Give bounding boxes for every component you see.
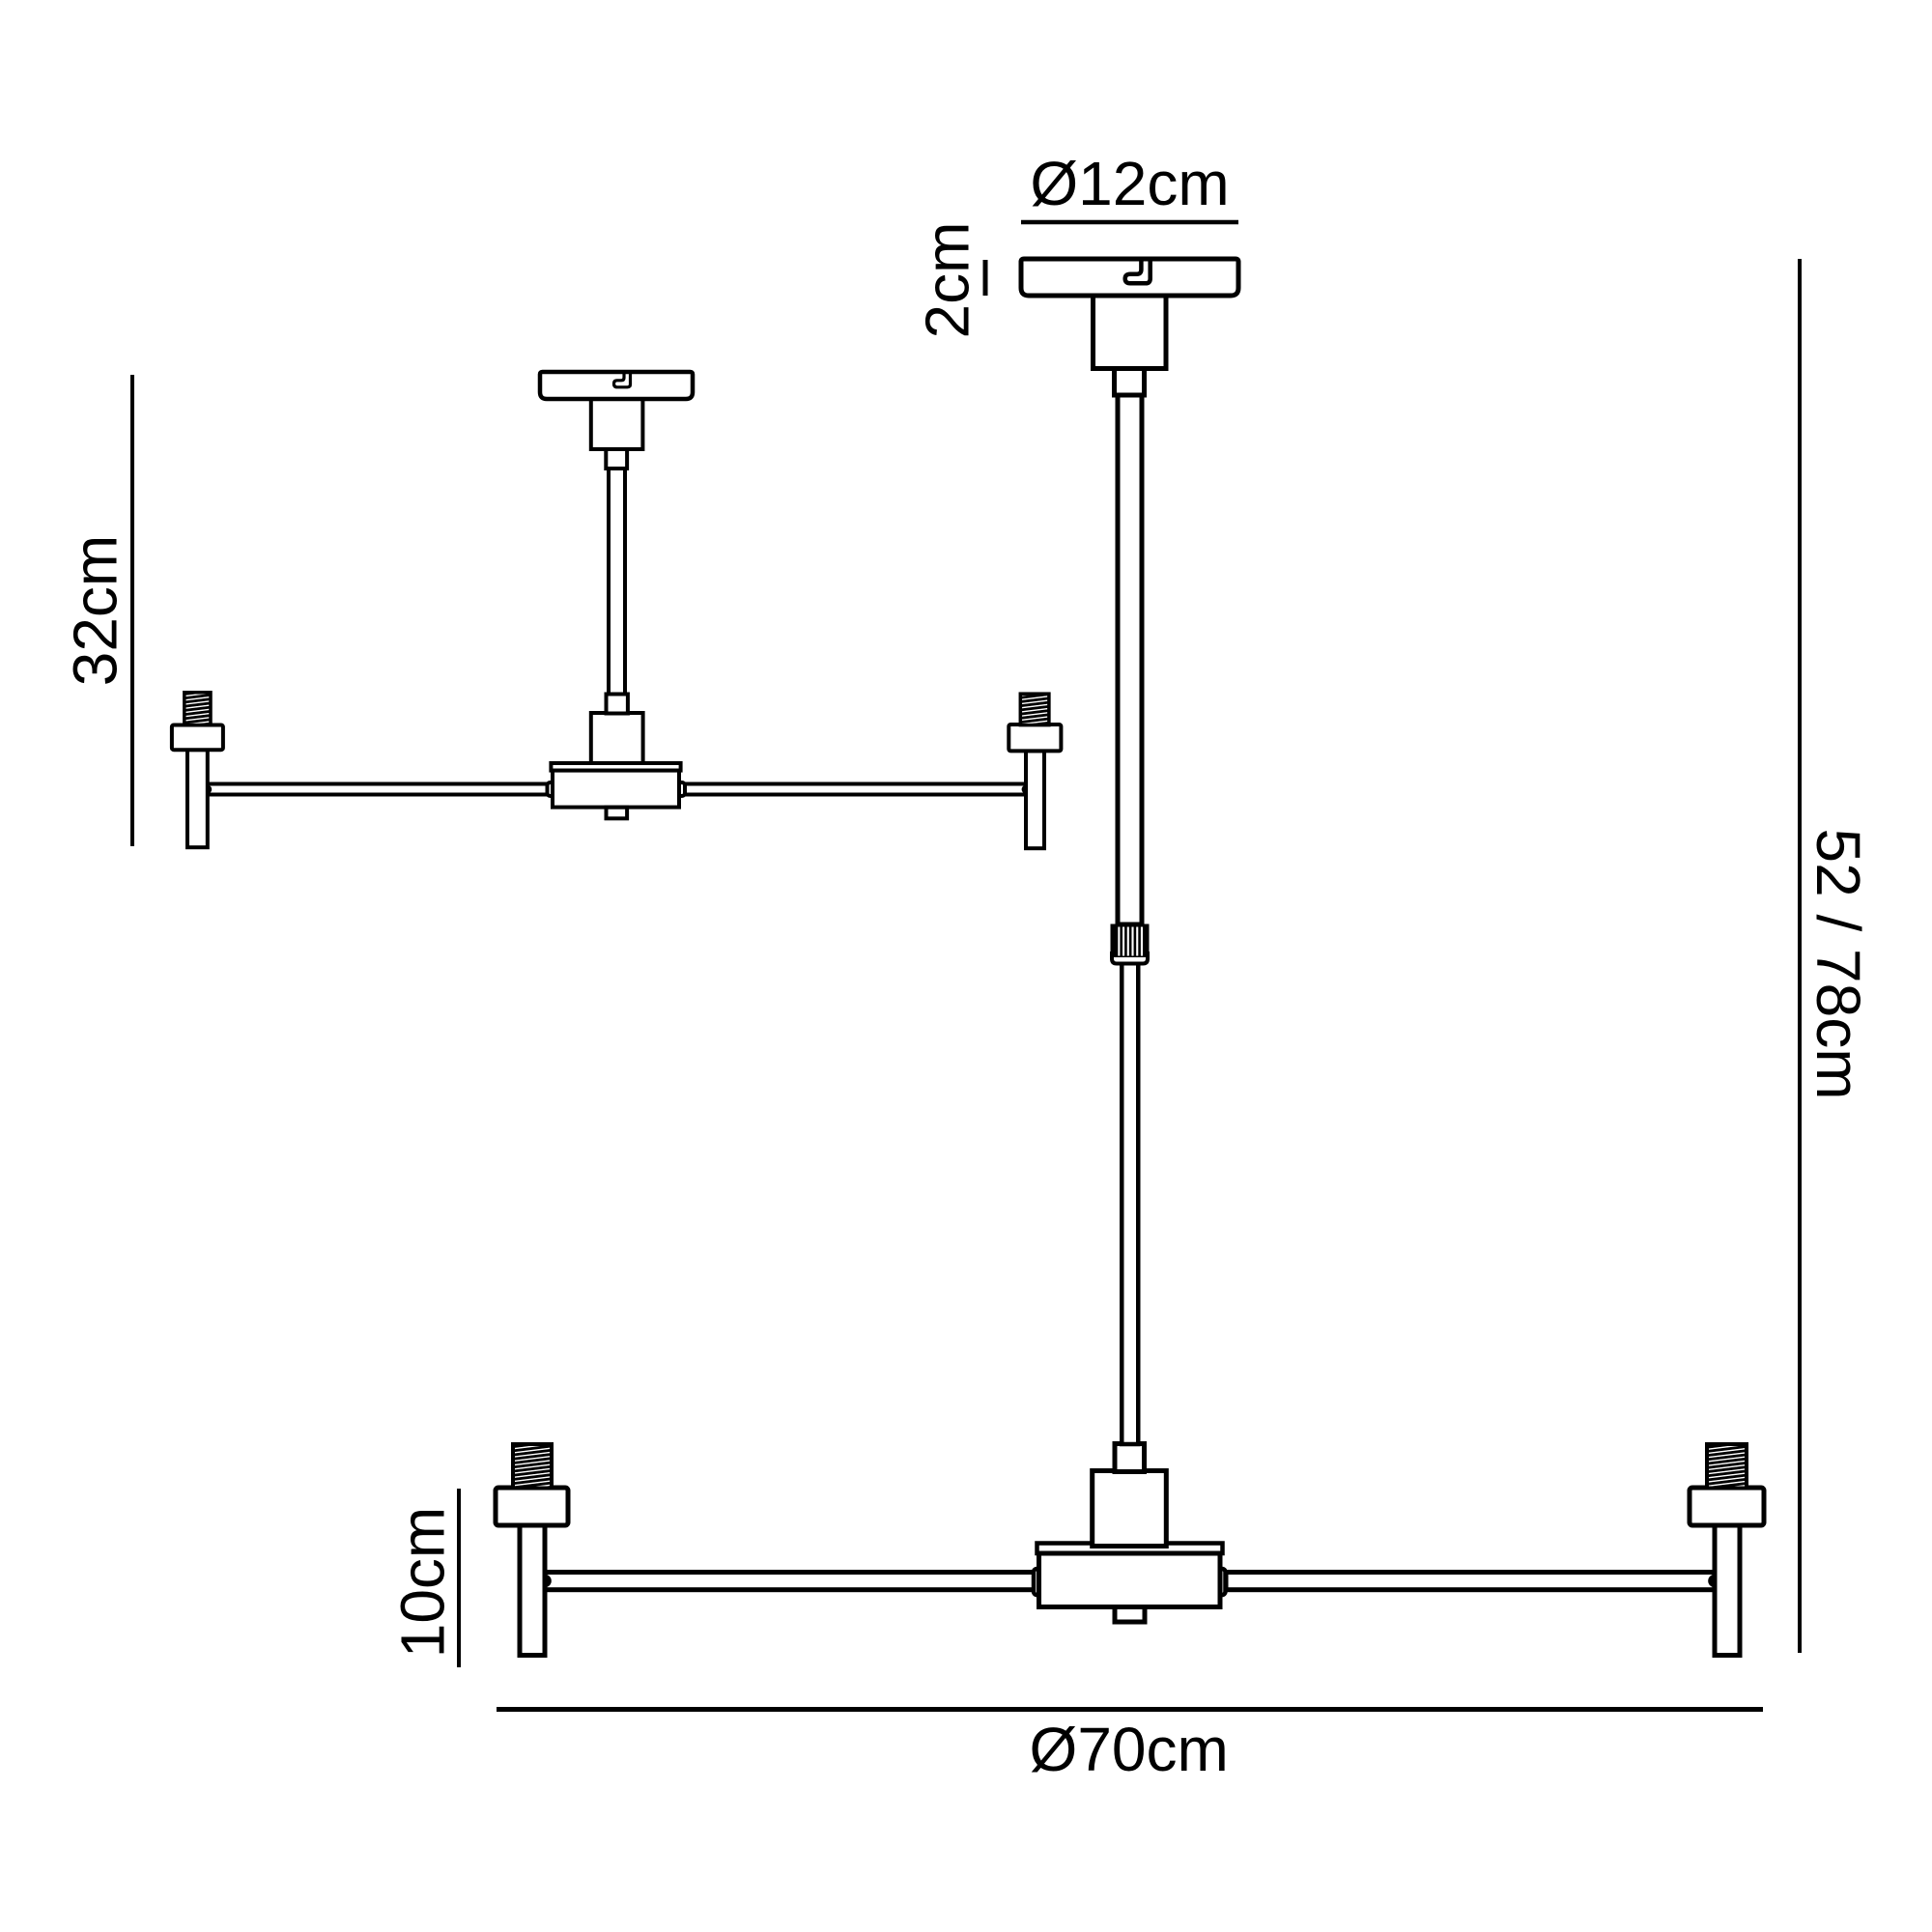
- svg-text:Ø70cm: Ø70cm: [1030, 1715, 1229, 1784]
- svg-text:Ø12cm: Ø12cm: [1030, 149, 1229, 218]
- svg-text:10cm: 10cm: [388, 1507, 458, 1659]
- svg-text:2cm: 2cm: [913, 222, 982, 339]
- svg-text:52 / 78cm: 52 / 78cm: [1804, 828, 1873, 1099]
- svg-text:32cm: 32cm: [61, 535, 130, 687]
